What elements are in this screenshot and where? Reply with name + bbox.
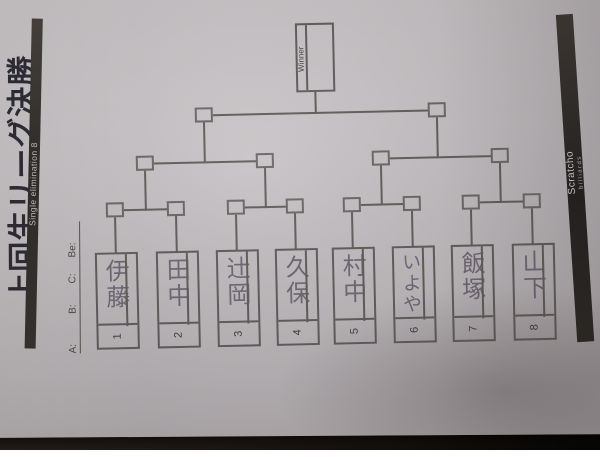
bracket-diagram: Winner — [0, 0, 600, 457]
bracket-connector — [531, 208, 534, 244]
photo-of-bracket-sheet: 上回生リーグ決勝 Single elimination 8 Scratcho b… — [0, 0, 600, 450]
match-slot-box — [167, 201, 185, 216]
entry-name-area: 久保 — [277, 250, 318, 322]
bracket-connector — [411, 211, 414, 247]
bracket-connector — [480, 200, 524, 203]
entry-number-cell: 4 — [278, 319, 318, 344]
entry-name-area: 辻岡 — [218, 251, 259, 323]
entry-name-area: いよや — [394, 247, 435, 319]
bracket-connector — [175, 216, 178, 252]
entry-number-cell: 7 — [454, 315, 494, 340]
paper-sheet: 上回生リーグ決勝 Single elimination 8 Scratcho b… — [0, 0, 600, 438]
entry-box-2: 田中 2 — [156, 251, 201, 349]
entry-side-strip — [246, 251, 259, 323]
entry-name-area: 田中 — [158, 253, 199, 325]
entry-name-area: 村中 — [334, 249, 375, 321]
entry-box-1: 伊藤 1 — [95, 252, 140, 350]
entry-side-strip — [422, 247, 435, 319]
entry-box-6: いよや 6 — [392, 245, 437, 343]
entry-box-5: 村中 5 — [332, 247, 377, 345]
entry-number-cell: 6 — [395, 316, 435, 341]
entry-side-strip — [542, 245, 555, 317]
bracket-connector — [264, 168, 267, 208]
match-slot-box — [286, 198, 304, 213]
seed-number: 5 — [349, 328, 361, 334]
entry-side-strip — [481, 246, 494, 318]
bracket-connector — [124, 208, 168, 211]
entry-box-8: 山下 8 — [512, 243, 557, 341]
entry-side-strip — [305, 250, 318, 322]
match-slot-box — [372, 150, 390, 165]
entry-number-cell: 8 — [515, 314, 555, 339]
bracket-connector — [114, 217, 117, 253]
match-slot-box — [195, 107, 213, 122]
bracket-connector — [380, 166, 383, 206]
match-slot-box — [106, 202, 124, 217]
bracket-connector — [203, 122, 206, 163]
match-slot-box — [462, 194, 480, 209]
bracket-connector — [351, 212, 354, 248]
match-slot-box — [136, 156, 154, 171]
match-slot-box — [256, 153, 274, 168]
winner-box: Winner — [295, 23, 335, 93]
entry-name-area: 山下 — [514, 245, 555, 317]
entry-box-3: 辻岡 3 — [216, 249, 261, 347]
match-slot-box — [343, 197, 361, 212]
seed-number: 3 — [233, 330, 245, 336]
match-slot-box — [227, 200, 245, 215]
entry-number-cell: 3 — [219, 320, 259, 345]
seed-number: 1 — [112, 333, 124, 339]
entry-side-strip — [125, 254, 138, 326]
entry-side-strip — [186, 253, 199, 325]
bracket-connector — [154, 160, 257, 164]
entry-name-area: 伊藤 — [97, 254, 138, 326]
bracket-connector — [470, 210, 473, 246]
seed-number: 8 — [529, 324, 541, 330]
entry-number-cell: 5 — [335, 318, 375, 343]
bracket-connector — [436, 117, 439, 158]
entry-side-strip — [362, 249, 375, 321]
bracket-connector — [213, 109, 429, 116]
entry-box-4: 久保 4 — [275, 248, 320, 346]
match-slot-box — [428, 102, 446, 117]
match-slot-box — [403, 196, 421, 211]
seed-number: 7 — [468, 325, 480, 331]
entry-name-area: 飯塚 — [453, 246, 494, 318]
bracket-connector — [144, 171, 147, 211]
seed-number: 6 — [409, 327, 421, 333]
bracket-connector — [314, 92, 316, 114]
bracket-connector — [361, 203, 404, 206]
entry-box-7: 飯塚 7 — [451, 244, 496, 342]
bracket-connector — [499, 163, 502, 203]
bracket-connector — [390, 155, 492, 159]
entry-number-cell: 2 — [159, 322, 199, 347]
winner-label: Winner — [296, 29, 307, 89]
bracket-connector — [245, 206, 287, 209]
bracket-connector — [294, 213, 297, 249]
player-name: いよや — [399, 252, 421, 315]
bracket-connector — [235, 215, 238, 251]
match-slot-box — [523, 193, 541, 208]
entry-number-cell: 1 — [98, 323, 138, 348]
seed-number: 4 — [292, 329, 304, 335]
seed-number: 2 — [173, 332, 185, 338]
winner-label-strip: Winner — [297, 25, 308, 90]
match-slot-box — [491, 148, 509, 163]
